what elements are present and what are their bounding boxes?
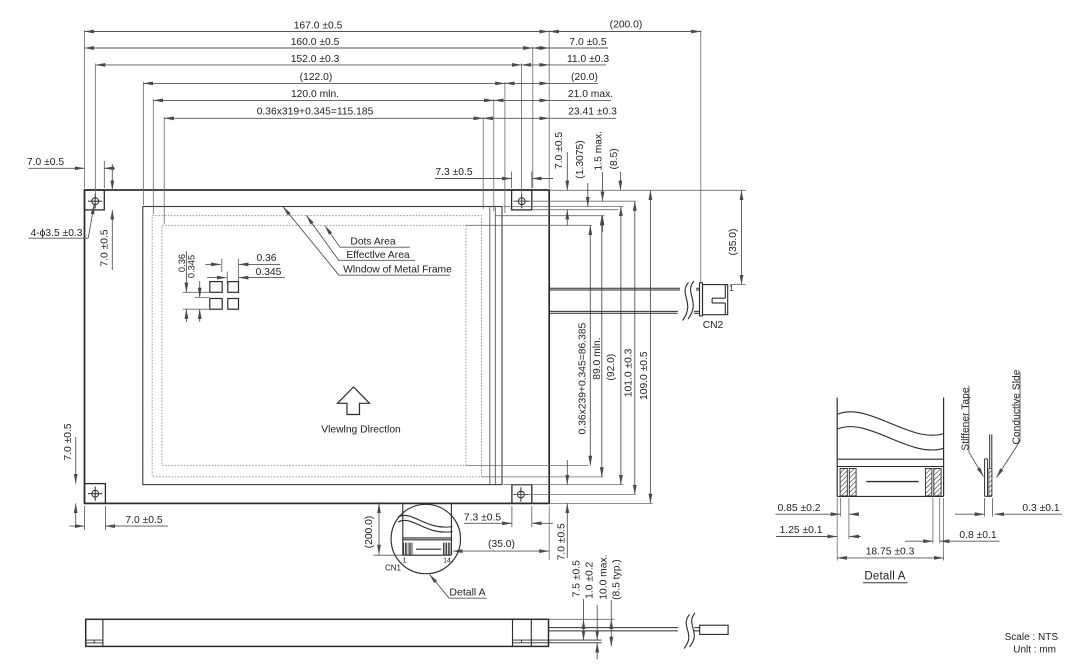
- svg-text:7.0 ±0.5: 7.0 ±0.5: [569, 37, 606, 48]
- svg-text:7.0 ±0.5: 7.0 ±0.5: [99, 229, 110, 266]
- svg-text:(122.0): (122.0): [300, 72, 333, 83]
- svg-text:152.0 ±0.3: 152.0 ±0.3: [291, 54, 340, 65]
- svg-text:7.3 ±0.5: 7.3 ±0.5: [435, 167, 472, 178]
- svg-text:14: 14: [443, 558, 451, 565]
- svg-text:7.5 ±0.5: 7.5 ±0.5: [571, 560, 582, 597]
- svg-text:1: 1: [403, 558, 407, 565]
- svg-text:109.0 ±0.5: 109.0 ±0.5: [639, 351, 650, 400]
- svg-text:0.36: 0.36: [177, 254, 187, 272]
- svg-text:Detall A: Detall A: [449, 587, 485, 599]
- svg-text:(20.0): (20.0): [571, 72, 598, 83]
- svg-text:7.3 ±0.5: 7.3 ±0.5: [464, 512, 501, 523]
- svg-text:(200.0): (200.0): [364, 516, 375, 549]
- svg-text:23.41 ±0.3: 23.41 ±0.3: [568, 107, 617, 118]
- svg-text:Conductlve Slde: Conductlve Slde: [1011, 369, 1022, 444]
- svg-text:(8.5): (8.5): [609, 148, 620, 169]
- svg-text:89.0 mln.: 89.0 mln.: [592, 337, 603, 379]
- svg-text:(35.0): (35.0): [728, 229, 739, 256]
- svg-text:1.0 ±0.2: 1.0 ±0.2: [584, 561, 595, 598]
- svg-text:1.25 ±0.1: 1.25 ±0.1: [780, 525, 823, 536]
- svg-text:160.0 ±0.5: 160.0 ±0.5: [291, 37, 340, 48]
- svg-text:10.0 max.: 10.0 max.: [598, 554, 609, 599]
- svg-text:0.36x319+0.345=115.185: 0.36x319+0.345=115.185: [257, 107, 374, 118]
- svg-text:Dots Area: Dots Area: [350, 237, 395, 248]
- svg-text:0.36: 0.36: [256, 253, 276, 264]
- svg-text:120.0 mln.: 120.0 mln.: [291, 89, 339, 100]
- svg-text:(200.0): (200.0): [610, 20, 643, 31]
- svg-text:21.0 max.: 21.0 max.: [568, 89, 613, 100]
- svg-text:(1.3075): (1.3075): [575, 140, 586, 178]
- svg-text:1: 1: [729, 284, 734, 293]
- svg-text:0.85 ±0.2: 0.85 ±0.2: [778, 503, 821, 514]
- svg-text:7.0 ±0.5: 7.0 ±0.5: [27, 157, 64, 168]
- svg-text:11.0 ±0.3: 11.0 ±0.3: [567, 54, 609, 65]
- svg-text:7.0 ±0.5: 7.0 ±0.5: [63, 423, 74, 460]
- svg-text:(92.0): (92.0): [606, 354, 617, 381]
- svg-text:Vlewlng Dlrectlon: Vlewlng Dlrectlon: [321, 425, 401, 436]
- svg-text:7.0 ±0.5: 7.0 ±0.5: [557, 523, 568, 560]
- svg-text:(35.0): (35.0): [488, 539, 515, 550]
- svg-text:0.8 ±0.1: 0.8 ±0.1: [959, 530, 996, 541]
- svg-text:167.0 ±0.5: 167.0 ±0.5: [294, 21, 343, 32]
- svg-text:CN1: CN1: [385, 564, 402, 573]
- svg-text:18.75 ±0.3: 18.75 ±0.3: [866, 546, 915, 557]
- svg-text:101.0 ±0.3: 101.0 ±0.3: [623, 348, 634, 397]
- svg-text:7.0 ±0.5: 7.0 ±0.5: [125, 515, 162, 526]
- svg-text:0.3 ±0.1: 0.3 ±0.1: [1022, 503, 1059, 514]
- svg-text:7.0 ±0.5: 7.0 ±0.5: [554, 132, 565, 169]
- svg-text:4-ϕ3.5 ±0.3: 4-ϕ3.5 ±0.3: [30, 228, 82, 239]
- svg-text:(8.5 typ.): (8.5 typ.): [611, 559, 622, 600]
- svg-text:Unlt : mm: Unlt : mm: [1013, 645, 1056, 656]
- svg-text:Detall A: Detall A: [864, 571, 905, 583]
- svg-text:Stlffener Tape: Stlffener Tape: [960, 387, 971, 450]
- svg-text:1.5 max.: 1.5 max.: [594, 131, 605, 171]
- svg-text:Scale : NTS: Scale : NTS: [1005, 632, 1059, 643]
- svg-text:0.36x239+0.345=86.385: 0.36x239+0.345=86.385: [578, 323, 589, 435]
- svg-text:Effectlve Area: Effectlve Area: [346, 250, 410, 261]
- svg-text:0.345: 0.345: [187, 255, 197, 278]
- svg-text:CN2: CN2: [703, 320, 724, 331]
- svg-text:0.345: 0.345: [256, 267, 282, 278]
- svg-text:Wlndow of Metal Frame: Wlndow of Metal Frame: [343, 265, 452, 276]
